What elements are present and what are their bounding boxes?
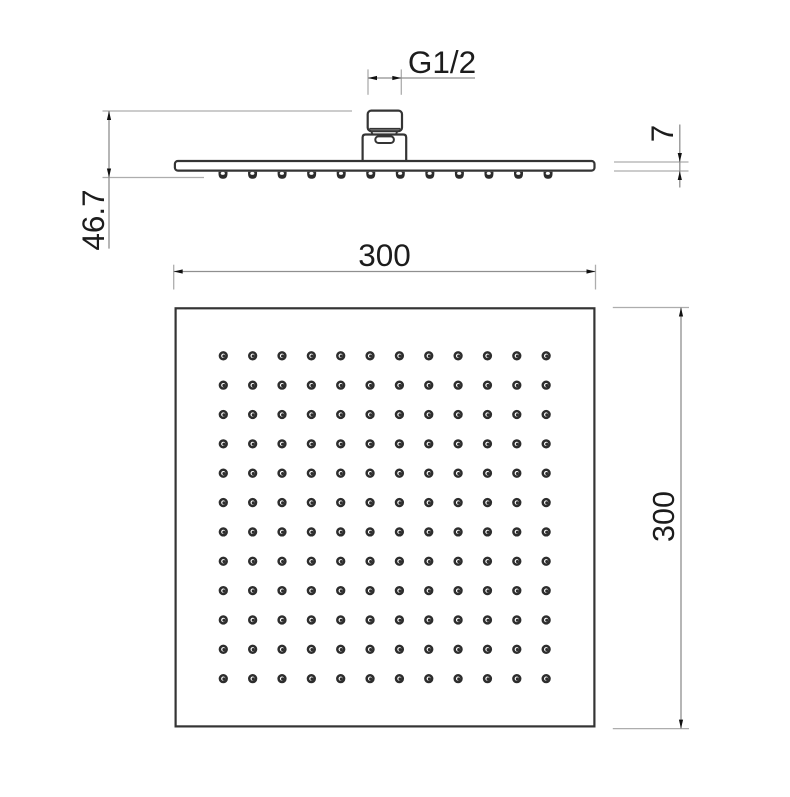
svg-text:300: 300 [358,237,411,273]
svg-text:46.7: 46.7 [75,189,111,250]
svg-text:7: 7 [644,125,680,143]
svg-text:300: 300 [647,491,681,542]
svg-text:G1/2: G1/2 [408,44,476,80]
